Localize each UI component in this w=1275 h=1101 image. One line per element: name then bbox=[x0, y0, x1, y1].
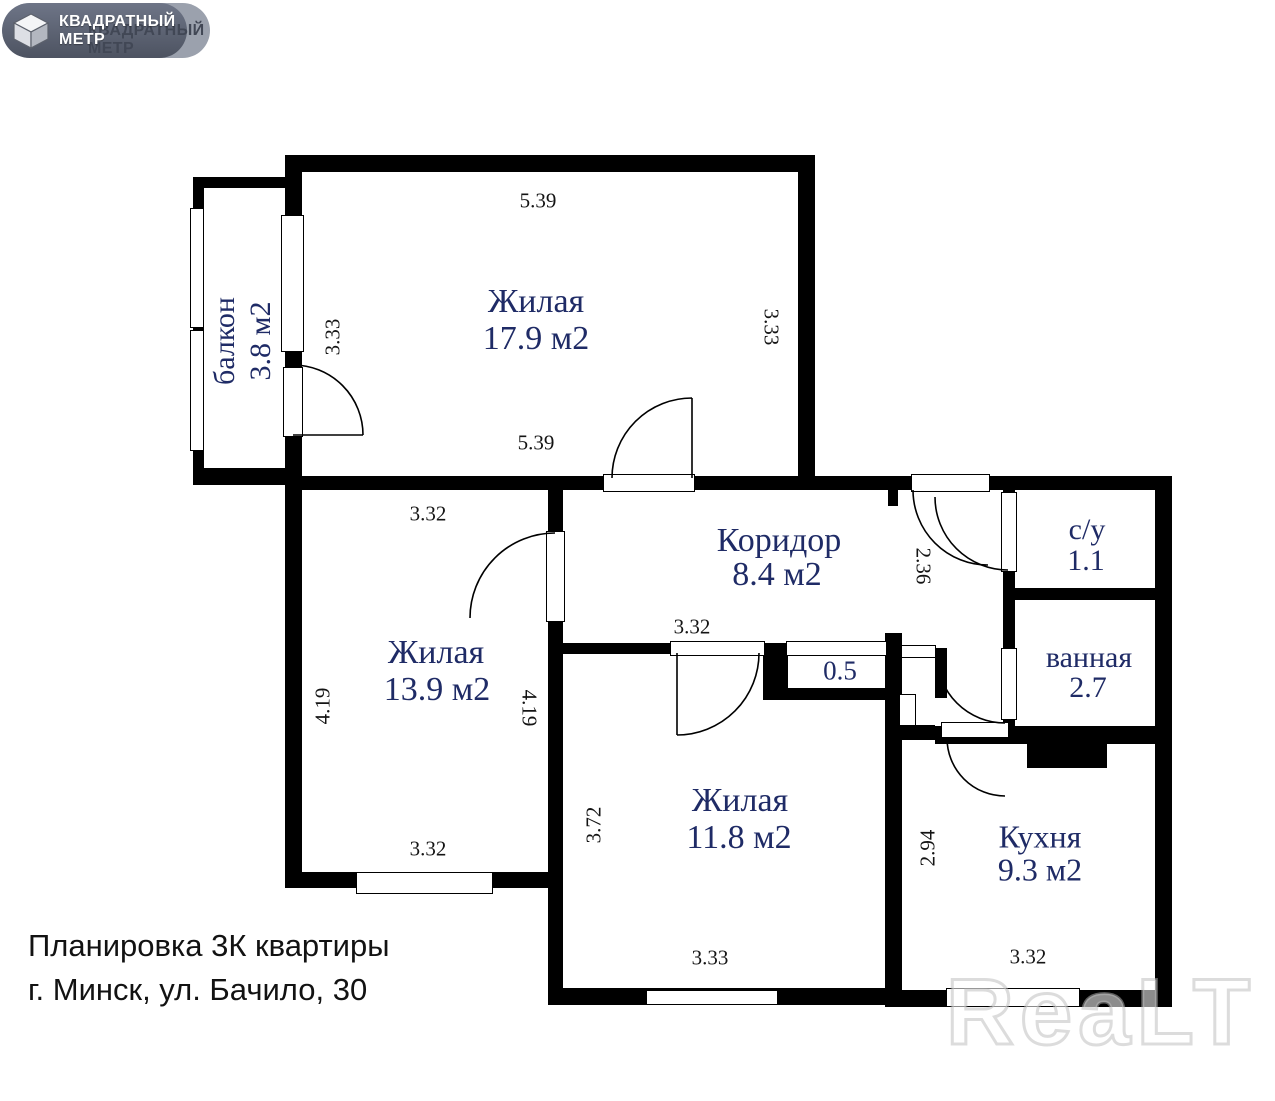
dim-living2-left: 4.19 bbox=[311, 688, 336, 725]
bathroom-door-arc bbox=[937, 655, 1005, 723]
dim-living2-right: 4.19 bbox=[517, 690, 542, 727]
living1-name-label: Жилая bbox=[488, 283, 584, 321]
dim-living1-top: 5.39 bbox=[520, 189, 557, 214]
floorplan-page: КВАДРАТНЫЙМЕТР КВАДРАТНЫЙМЕТР bbox=[0, 0, 1275, 1101]
kitchen-door-arc bbox=[947, 738, 1005, 796]
wc-door-arc bbox=[935, 497, 1008, 570]
dim-hallway: 2.36 bbox=[911, 548, 936, 585]
dim-kitchen-left: 2.94 bbox=[916, 830, 941, 867]
kitchen-area-label: 9.3 м2 bbox=[998, 852, 1082, 889]
balcony-door-arc bbox=[293, 365, 363, 435]
dim-living3-bottom: 3.33 bbox=[692, 946, 729, 971]
living1-area-label: 17.9 м2 bbox=[483, 320, 590, 358]
living3-area-label: 11.8 м2 bbox=[686, 819, 791, 857]
living2-name-label: Жилая bbox=[388, 634, 484, 672]
bathroom-area-label: 2.7 bbox=[1069, 671, 1107, 705]
dim-living2-bottom: 3.32 bbox=[410, 837, 447, 862]
bathroom-name-label: ванная bbox=[1046, 641, 1132, 675]
dim-living1-left: 3.33 bbox=[321, 319, 346, 356]
wc-area-label: 1.1 bbox=[1067, 544, 1105, 578]
living2-area-label: 13.9 м2 bbox=[384, 671, 491, 709]
dim-living1-bottom: 5.39 bbox=[518, 431, 555, 456]
dim-corridor-bottom: 3.32 bbox=[674, 615, 711, 640]
closet-area-label: 0.5 bbox=[823, 656, 857, 687]
agency-logo-text: КВАДРАТНЫЙМЕТР bbox=[59, 13, 176, 49]
living3-name-label: Жилая bbox=[692, 782, 788, 820]
agency-logo-badge: КВАДРАТНЫЙМЕТР КВАДРАТНЫЙМЕТР bbox=[2, 3, 210, 58]
realt-watermark: ReaLT bbox=[946, 958, 1256, 1066]
corridor-name-label: Коридор bbox=[717, 522, 841, 560]
corridor-area-label: 8.4 м2 bbox=[732, 556, 822, 594]
wc-name-label: с/у bbox=[1069, 513, 1106, 547]
dim-living2-top: 3.32 bbox=[410, 502, 447, 527]
kitchen-name-label: Кухня bbox=[999, 819, 1082, 856]
living2-door-arc bbox=[470, 533, 555, 618]
dim-living3-left: 3.72 bbox=[582, 807, 607, 844]
balcony-label: балкон 3.8 м2 bbox=[207, 297, 279, 385]
living1-door-arc bbox=[612, 398, 692, 478]
living3-door-arc bbox=[677, 653, 759, 735]
cube-logo-icon bbox=[11, 11, 51, 51]
dim-living1-right: 3.33 bbox=[759, 309, 784, 346]
